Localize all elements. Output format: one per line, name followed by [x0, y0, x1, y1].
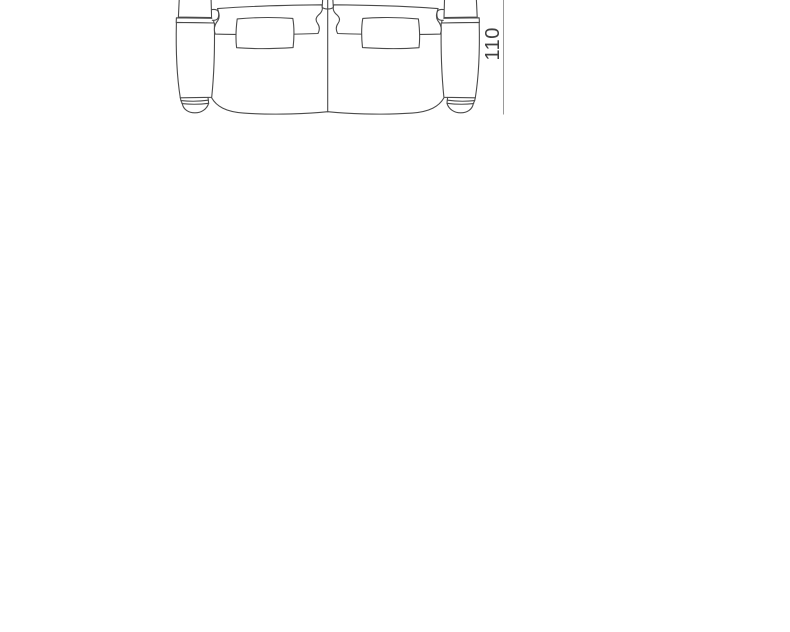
left-armrest-body	[176, 22, 214, 97]
left-armrest-top-block	[178, 0, 211, 18]
left-lumbar-pillow	[236, 18, 294, 49]
sofa-top-view	[176, 0, 479, 114]
left-armrest-front-line-1	[181, 100, 208, 101]
left-armrest-front-arc	[182, 103, 208, 112]
left-armrest-front-line-2	[182, 103, 209, 104]
left-armrest-front-side-right	[208, 97, 209, 103]
dimension-label: 110	[482, 27, 504, 60]
sofa-left-half	[176, 0, 322, 113]
drawing-canvas: 110	[0, 0, 790, 632]
sofa-plan-drawing: 110	[0, 0, 790, 632]
sofa-right-half	[333, 0, 479, 113]
dimension-annotation: 110	[482, 0, 504, 115]
